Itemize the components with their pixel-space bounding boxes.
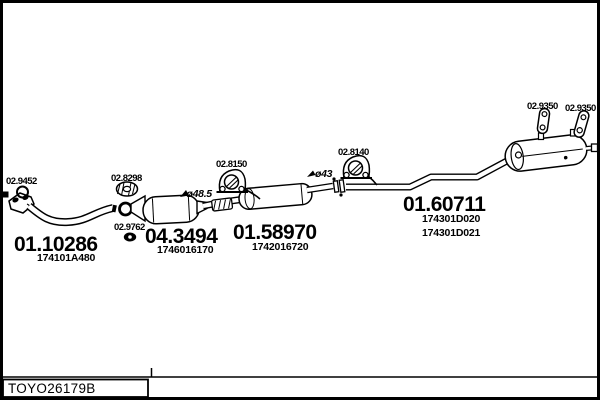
fitting-code-clamp: 02.8298: [111, 173, 142, 184]
labels: 02.9452 02.8298 02.9762 02.8150 02.8140 …: [6, 101, 596, 396]
silencer-outlet-pipe: [307, 177, 345, 196]
centre-silencer-drawing: [238, 183, 313, 210]
fitting-code-hanger-mid: 02.8150: [216, 159, 247, 170]
mid-flange-joint: [332, 177, 344, 196]
oval-gasket-icon: [124, 233, 136, 242]
fitting-code-hanger-rear: 02.8140: [338, 147, 369, 158]
parts-diagram-page: 02.9452 02.8298 02.9762 02.8150 02.8140 …: [0, 0, 600, 400]
oem-front-pipe: 174101A480: [37, 252, 95, 264]
tail-pipe-drawing: [346, 155, 518, 187]
fitting-code-ring-gasket: 02.9452: [6, 176, 37, 187]
clamp-icon: [117, 182, 138, 196]
inlet-pipe-opening: [516, 152, 522, 158]
dimension-cat-outlet: ø48.5: [187, 188, 213, 200]
rubber-hanger-mid-icon: [217, 170, 261, 199]
fitting-code-hanger-rod-left: 02.9350: [527, 101, 558, 112]
drawing-code: TOYO26179B: [8, 381, 96, 396]
rubber-hanger-rear-icon: [341, 156, 378, 185]
oem-rear-silencer-2: 174301D021: [422, 227, 480, 239]
oem-rear-silencer-1: 174301D020: [422, 213, 480, 225]
oem-catalyst: 1746016170: [157, 244, 214, 256]
tailpipe-tip: [586, 144, 598, 152]
dimension-tail-pipe: ø43: [315, 168, 333, 180]
front-pipe-drawing: [29, 206, 113, 222]
left-edge-stub: [3, 192, 9, 198]
fitting-code-flange-gasket: 02.9762: [114, 222, 145, 233]
exhaust-diagram-canvas: 02.9452 02.8298 02.9762 02.8150 02.8140 …: [0, 0, 600, 400]
fitting-code-hanger-rod-right: 02.9350: [565, 103, 596, 114]
oem-centre-silencer: 1742016720: [252, 241, 309, 253]
sleeve-clamp: [211, 198, 232, 211]
catalyst-inlet-joint: [112, 203, 132, 215]
